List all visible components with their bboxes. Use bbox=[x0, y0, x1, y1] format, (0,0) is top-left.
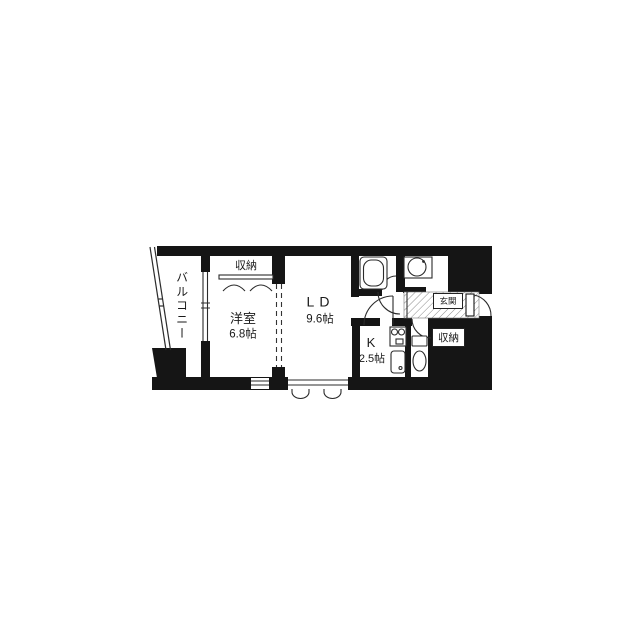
entrance-label: 玄関 bbox=[439, 295, 456, 307]
kitchen-size: 2.5帖 bbox=[359, 353, 385, 365]
partition-dashed bbox=[277, 284, 282, 367]
closet-top-label: 収納 bbox=[235, 260, 257, 272]
kitchen-label: K bbox=[367, 336, 376, 350]
floorplan-page: バルコニー 収納 洋室 6.8帖 LD 9.6帖 K 2.5帖 玄関 収納 bbox=[0, 0, 640, 640]
wall-kitchen-left bbox=[352, 318, 360, 378]
window-living-dining bbox=[288, 377, 348, 399]
window-balcony bbox=[201, 272, 210, 341]
living-dining-label: LD bbox=[302, 294, 335, 309]
wall-hall-bottom-stub bbox=[405, 318, 412, 326]
western-room-label: 洋室 bbox=[230, 312, 256, 326]
closet-top-doors bbox=[219, 275, 273, 291]
window-western-room bbox=[251, 378, 269, 389]
closet-entrance-label: 収納 bbox=[438, 330, 459, 345]
entrance-label-box: 玄関 bbox=[433, 293, 463, 309]
balcony-railing bbox=[150, 247, 171, 350]
wall-partition-top bbox=[272, 254, 285, 284]
stove bbox=[390, 327, 406, 346]
western-room-size: 6.8帖 bbox=[229, 329, 257, 342]
kitchen-sink bbox=[391, 351, 405, 373]
living-dining-size: 9.6帖 bbox=[306, 314, 334, 327]
wall-bath-bottom bbox=[351, 289, 382, 296]
toilet bbox=[412, 336, 427, 371]
wall-topright-block bbox=[448, 246, 492, 294]
wall-room-left-bottom bbox=[201, 341, 210, 383]
closet-entrance-label-box: 収納 bbox=[432, 328, 465, 347]
wall-kitchen-top-right bbox=[392, 318, 406, 326]
wall-partition-bottom bbox=[272, 367, 285, 381]
bathtub bbox=[360, 257, 387, 289]
balcony-label: バルコニー bbox=[174, 271, 187, 341]
wall-room-left-top bbox=[201, 254, 210, 272]
washbasin bbox=[404, 257, 432, 278]
